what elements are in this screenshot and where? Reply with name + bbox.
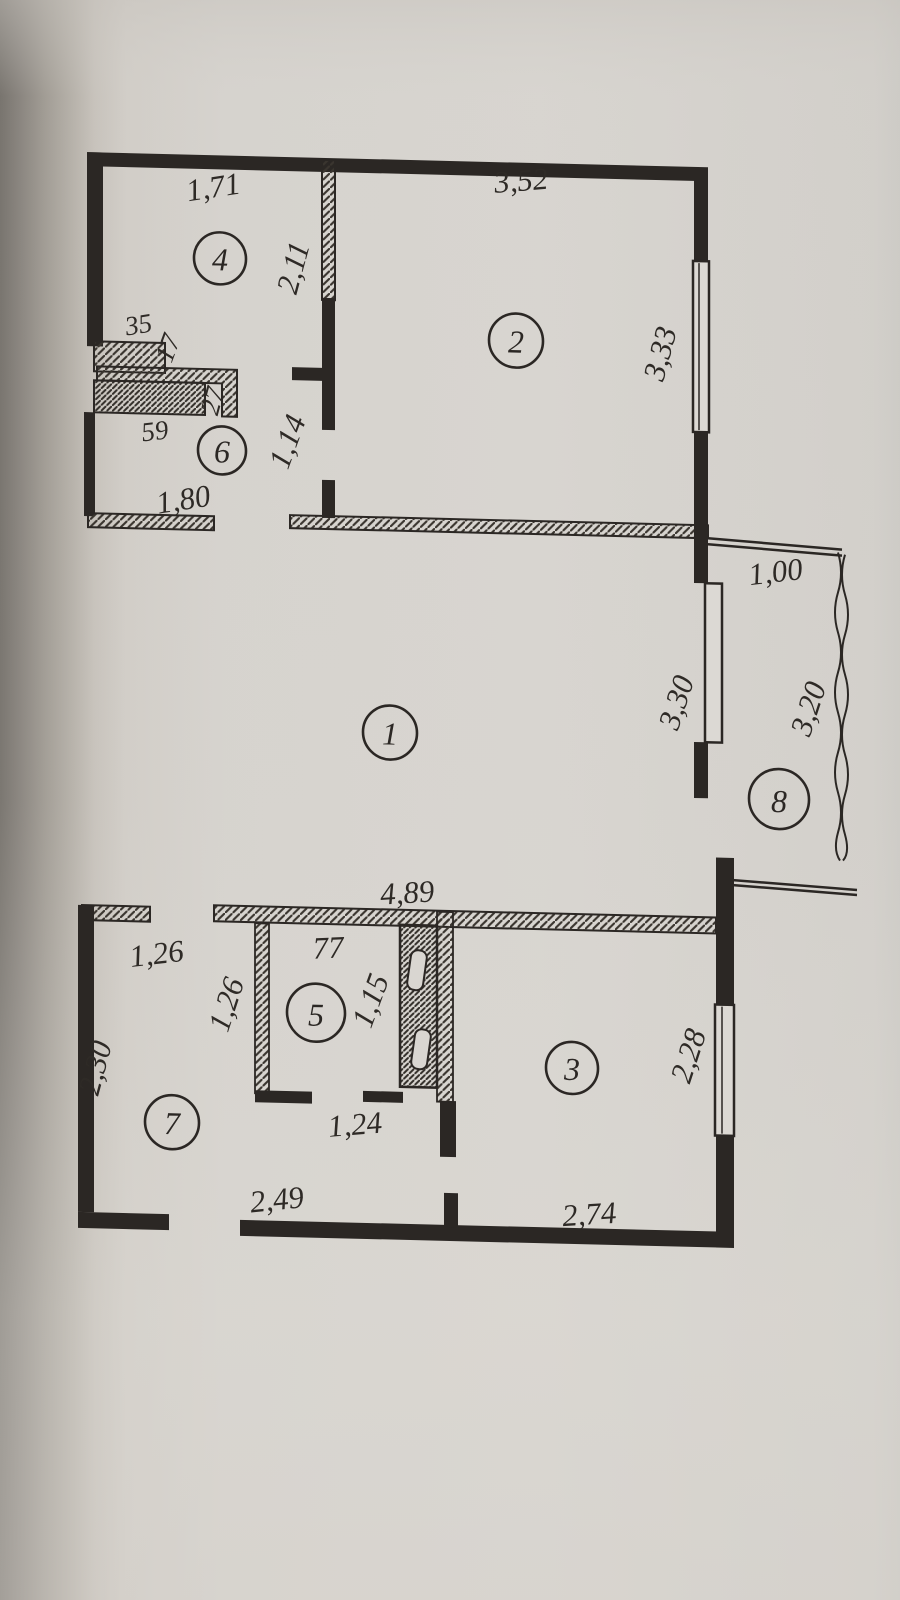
svg-text:7: 7 (164, 1105, 182, 1141)
svg-text:8: 8 (771, 783, 787, 819)
svg-text:3: 3 (563, 1051, 580, 1087)
svg-text:77: 77 (312, 929, 347, 965)
svg-text:2,74: 2,74 (561, 1195, 618, 1233)
svg-text:3,52: 3,52 (491, 161, 550, 200)
svg-text:4,89: 4,89 (379, 873, 436, 911)
svg-text:35: 35 (122, 308, 155, 342)
svg-text:1,00: 1,00 (746, 551, 805, 592)
svg-text:1: 1 (382, 715, 398, 751)
svg-text:59: 59 (139, 414, 170, 447)
svg-text:6: 6 (214, 433, 230, 469)
svg-text:5: 5 (308, 997, 324, 1033)
svg-text:1,26: 1,26 (127, 933, 186, 974)
svg-text:2,49: 2,49 (248, 1179, 306, 1219)
svg-text:2: 2 (508, 323, 524, 359)
svg-text:1,24: 1,24 (326, 1105, 384, 1144)
svg-text:4: 4 (212, 241, 228, 277)
